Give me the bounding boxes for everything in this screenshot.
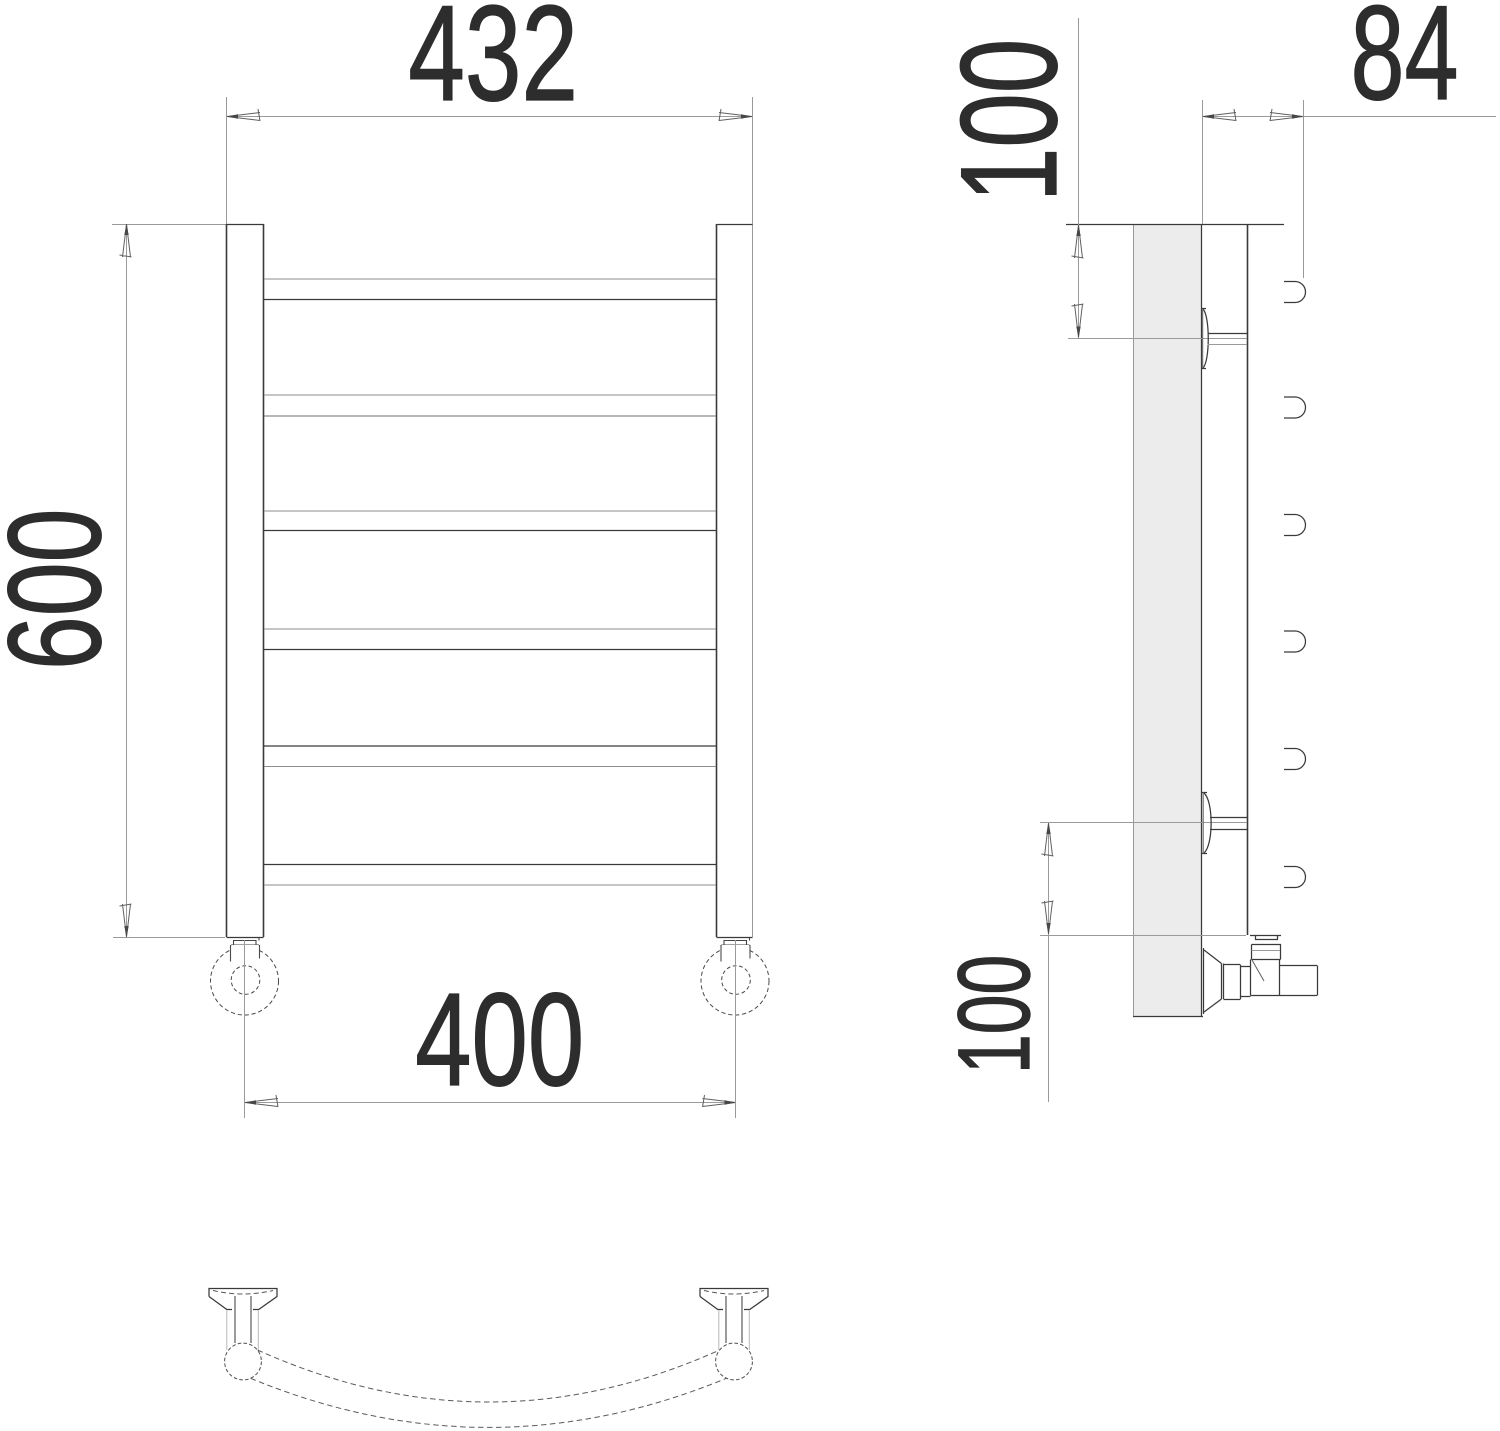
svg-text:100: 100 — [936, 955, 1051, 1074]
svg-text:84: 84 — [1351, 0, 1459, 128]
svg-text:600: 600 — [0, 509, 129, 670]
svg-text:432: 432 — [408, 0, 578, 129]
svg-text:100: 100 — [933, 39, 1086, 202]
svg-text:400: 400 — [415, 965, 584, 1113]
